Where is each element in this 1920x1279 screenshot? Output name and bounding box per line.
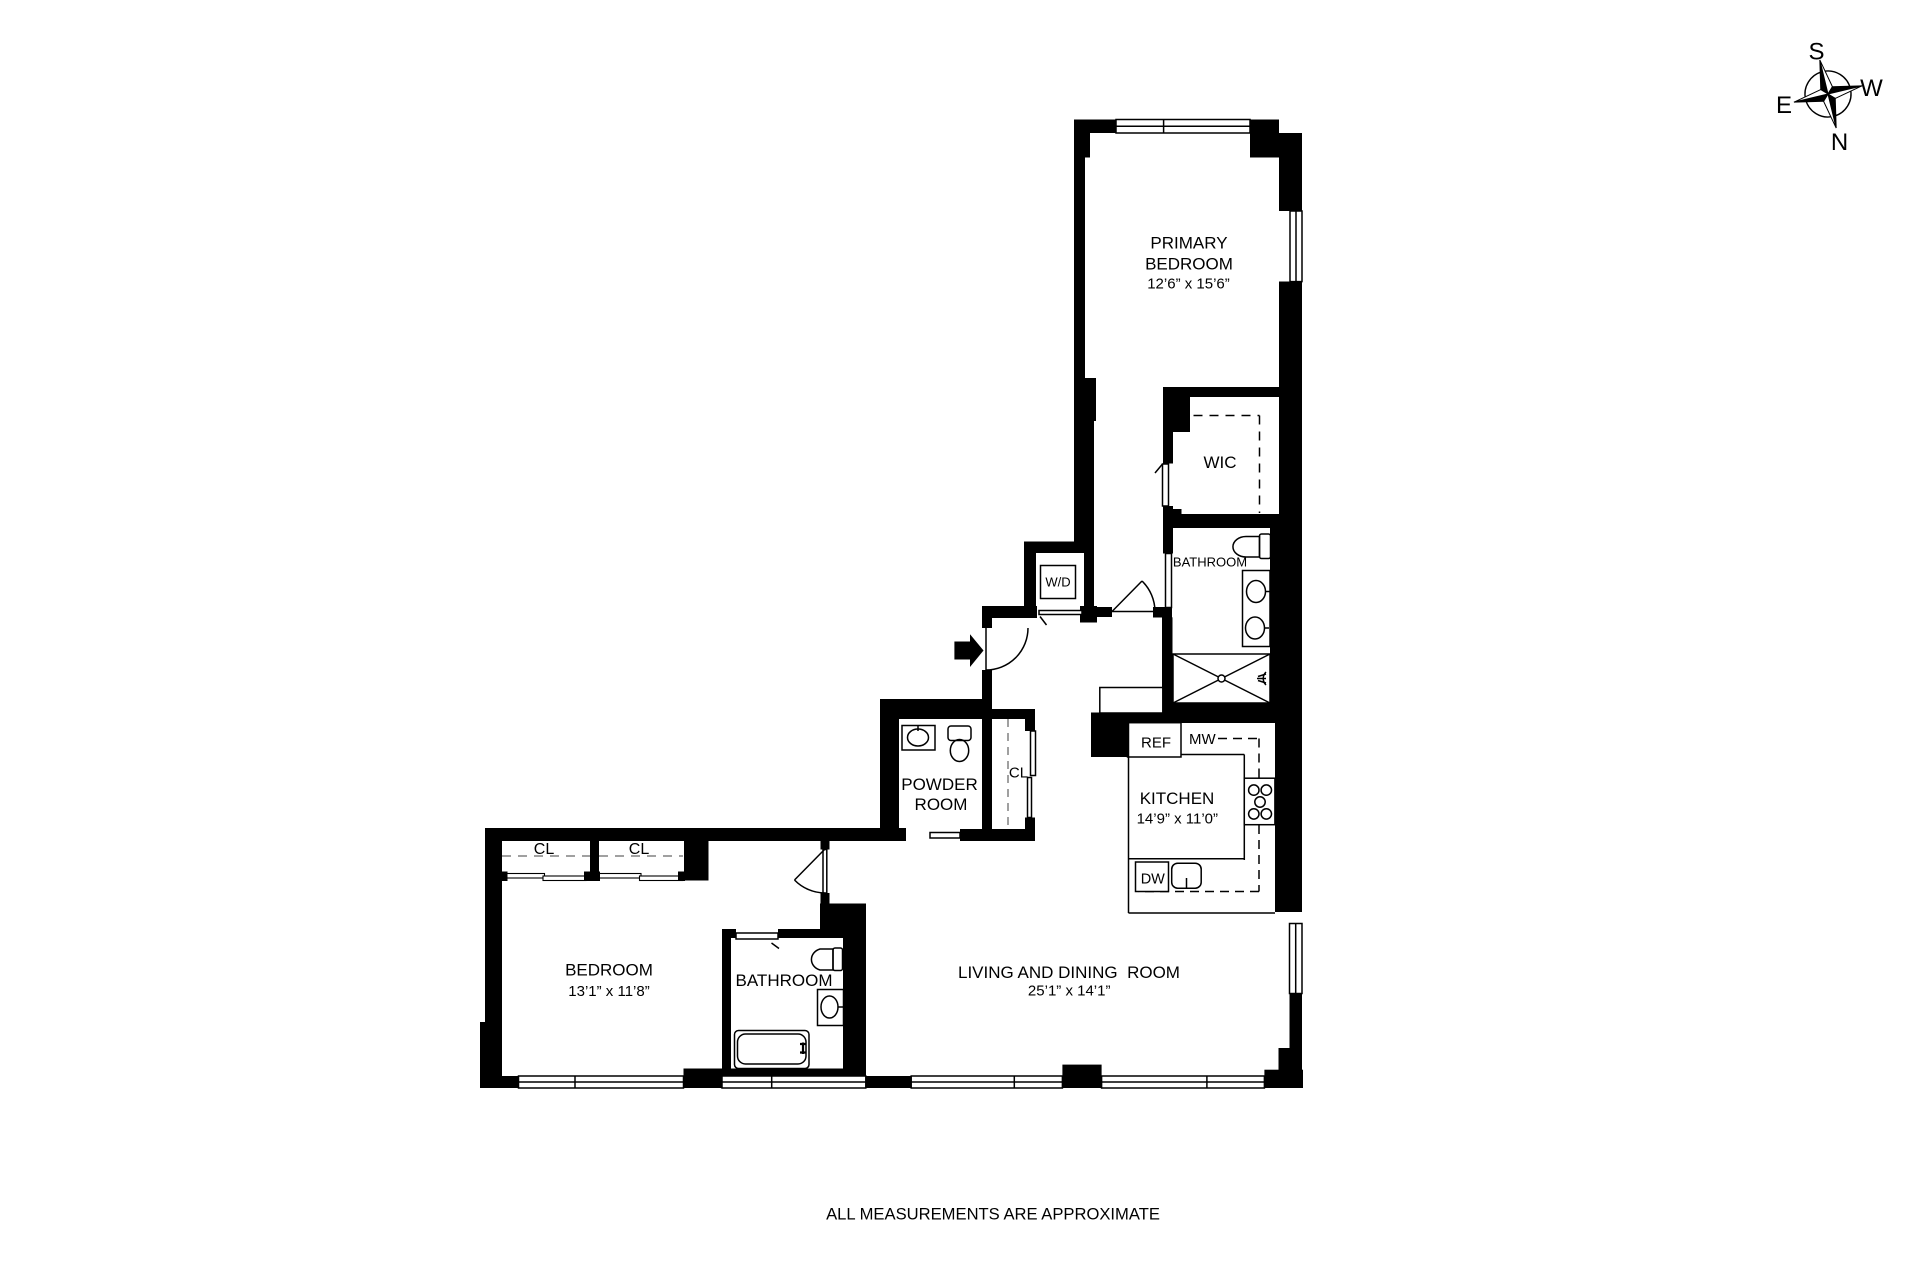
- svg-text:E: E: [1776, 92, 1792, 119]
- svg-text:13’1” x 11’8”: 13’1” x 11’8”: [568, 983, 649, 1000]
- svg-text:BEDROOM: BEDROOM: [565, 961, 653, 980]
- svg-text:LIVING AND DINING ROOM: LIVING AND DINING ROOM: [958, 963, 1180, 982]
- svg-text:14’9” x 11’0”: 14’9” x 11’0”: [1137, 811, 1218, 828]
- svg-text:S: S: [1808, 39, 1824, 66]
- svg-text:ROOM: ROOM: [915, 795, 968, 814]
- svg-text:PRIMARY: PRIMARY: [1150, 234, 1227, 253]
- svg-text:N: N: [1831, 129, 1848, 156]
- svg-text:BEDROOM: BEDROOM: [1145, 254, 1233, 273]
- svg-text:ALL MEASUREMENTS ARE APPROXIMA: ALL MEASUREMENTS ARE APPROXIMATE: [826, 1205, 1160, 1224]
- svg-text:25’1” x 14’1”: 25’1” x 14’1”: [1028, 983, 1111, 1000]
- svg-text:12’6” x 15’6”: 12’6” x 15’6”: [1147, 276, 1230, 293]
- svg-text:CL: CL: [1009, 765, 1028, 782]
- svg-text:W: W: [1860, 75, 1883, 102]
- svg-text:DW: DW: [1141, 872, 1165, 888]
- svg-text:POWDER: POWDER: [901, 775, 978, 794]
- svg-text:MW: MW: [1189, 731, 1216, 748]
- svg-text:BATHROOM: BATHROOM: [736, 971, 833, 990]
- svg-text:REF: REF: [1141, 735, 1171, 752]
- svg-text:CL: CL: [629, 841, 650, 858]
- svg-text:BATHROOM: BATHROOM: [1173, 555, 1247, 570]
- svg-text:KITCHEN: KITCHEN: [1140, 789, 1215, 808]
- svg-text:W/D: W/D: [1045, 575, 1070, 590]
- svg-text:CL: CL: [534, 841, 555, 858]
- svg-text:WIC: WIC: [1203, 453, 1236, 472]
